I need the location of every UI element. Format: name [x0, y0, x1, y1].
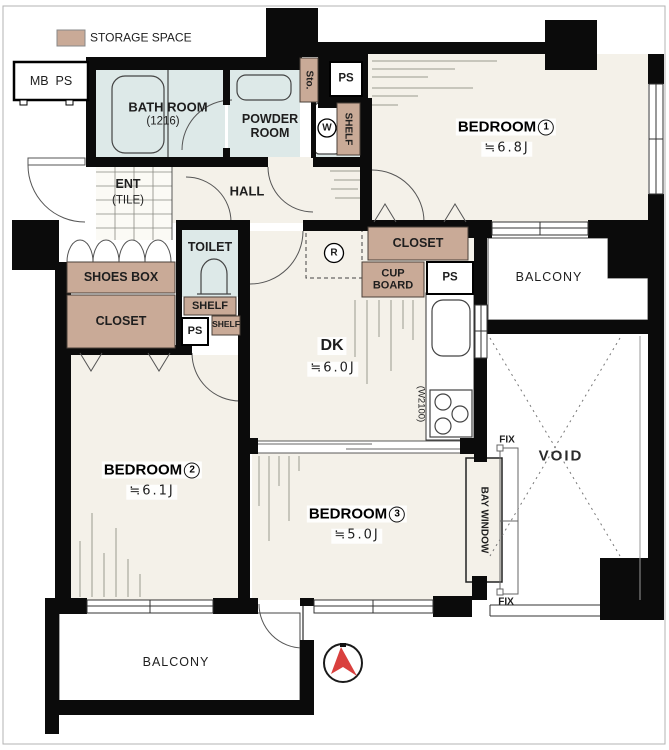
bedroom3-size-label: ≒5.0J [331, 529, 382, 544]
bedroom1-floor [368, 54, 648, 222]
bedroom3-floor [252, 452, 476, 600]
kitchen-width-label: (W2100) [415, 386, 426, 422]
circled-3: 3 [389, 506, 405, 522]
legend-swatch [57, 30, 85, 46]
bath-size-label: (1216) [146, 116, 179, 129]
ps-kitchen-label: PS [442, 272, 457, 285]
washer-label: W [322, 122, 331, 133]
balcony-bottom-label: BALCONY [143, 655, 210, 669]
bay-window-label: BAY WINDOW [478, 487, 489, 554]
circled-2: 2 [184, 462, 200, 478]
bedroom1-side-window [649, 84, 663, 194]
dk-size-label: ≒6.0J [307, 362, 358, 377]
shoes-box-label: SHOES BOX [84, 270, 158, 284]
sto-label: Sto. [303, 71, 314, 90]
floor-plan: STORAGE SPACE MB PS BATH ROOM (1216) POW… [0, 0, 669, 750]
dk-label: DK [317, 337, 346, 355]
kitchen-window [475, 305, 487, 358]
fridge-label: R [330, 247, 337, 258]
bedroom1-size-label: ≒6.8J [481, 142, 532, 157]
powder-room-label: POWDER ROOM [242, 112, 298, 140]
void-label: VOID [539, 449, 584, 466]
ps-top-label: PS [338, 73, 353, 86]
cupboard-label: CUP BOARD [373, 268, 413, 293]
legend-label: STORAGE SPACE [90, 31, 192, 44]
ent-label: ENT [116, 177, 141, 191]
bedroom2-window [87, 600, 213, 613]
circled-1: 1 [538, 119, 554, 135]
shelf-small-label: SHELF [212, 320, 240, 330]
balcony-right-label: BALCONY [516, 270, 583, 284]
ps-mid-label: PS [188, 325, 203, 337]
shelf-washer-label: SHELF [342, 113, 353, 146]
shelf-toilet-label: SHELF [192, 300, 228, 312]
closet-bedroom1-label: CLOSET [393, 236, 444, 250]
closet-ent-label: CLOSET [96, 314, 147, 328]
sliding-door [256, 441, 462, 453]
toilet-label: TOILET [188, 240, 232, 254]
ent-tile-label: (TILE) [112, 195, 144, 208]
compass-icon [324, 643, 362, 682]
bedroom3-window [314, 600, 433, 613]
bedroom2-label: BEDROOM2 [102, 462, 202, 479]
mb-ps-label: MB PS [30, 74, 72, 88]
entrance-door-leaf [28, 158, 85, 165]
entrance-door-arc [28, 165, 85, 222]
fix-top-label: FIX [499, 434, 515, 445]
fix-bottom-label: FIX [498, 596, 514, 607]
bedroom2-size-label: ≒6.1J [126, 485, 177, 500]
bedroom1-label: BEDROOM1 [456, 119, 556, 136]
bedroom3-label: BEDROOM3 [307, 506, 407, 523]
dk-balcony-window [492, 222, 588, 235]
hall-label: HALL [230, 185, 265, 200]
bath-room-label: BATH ROOM [128, 101, 207, 116]
